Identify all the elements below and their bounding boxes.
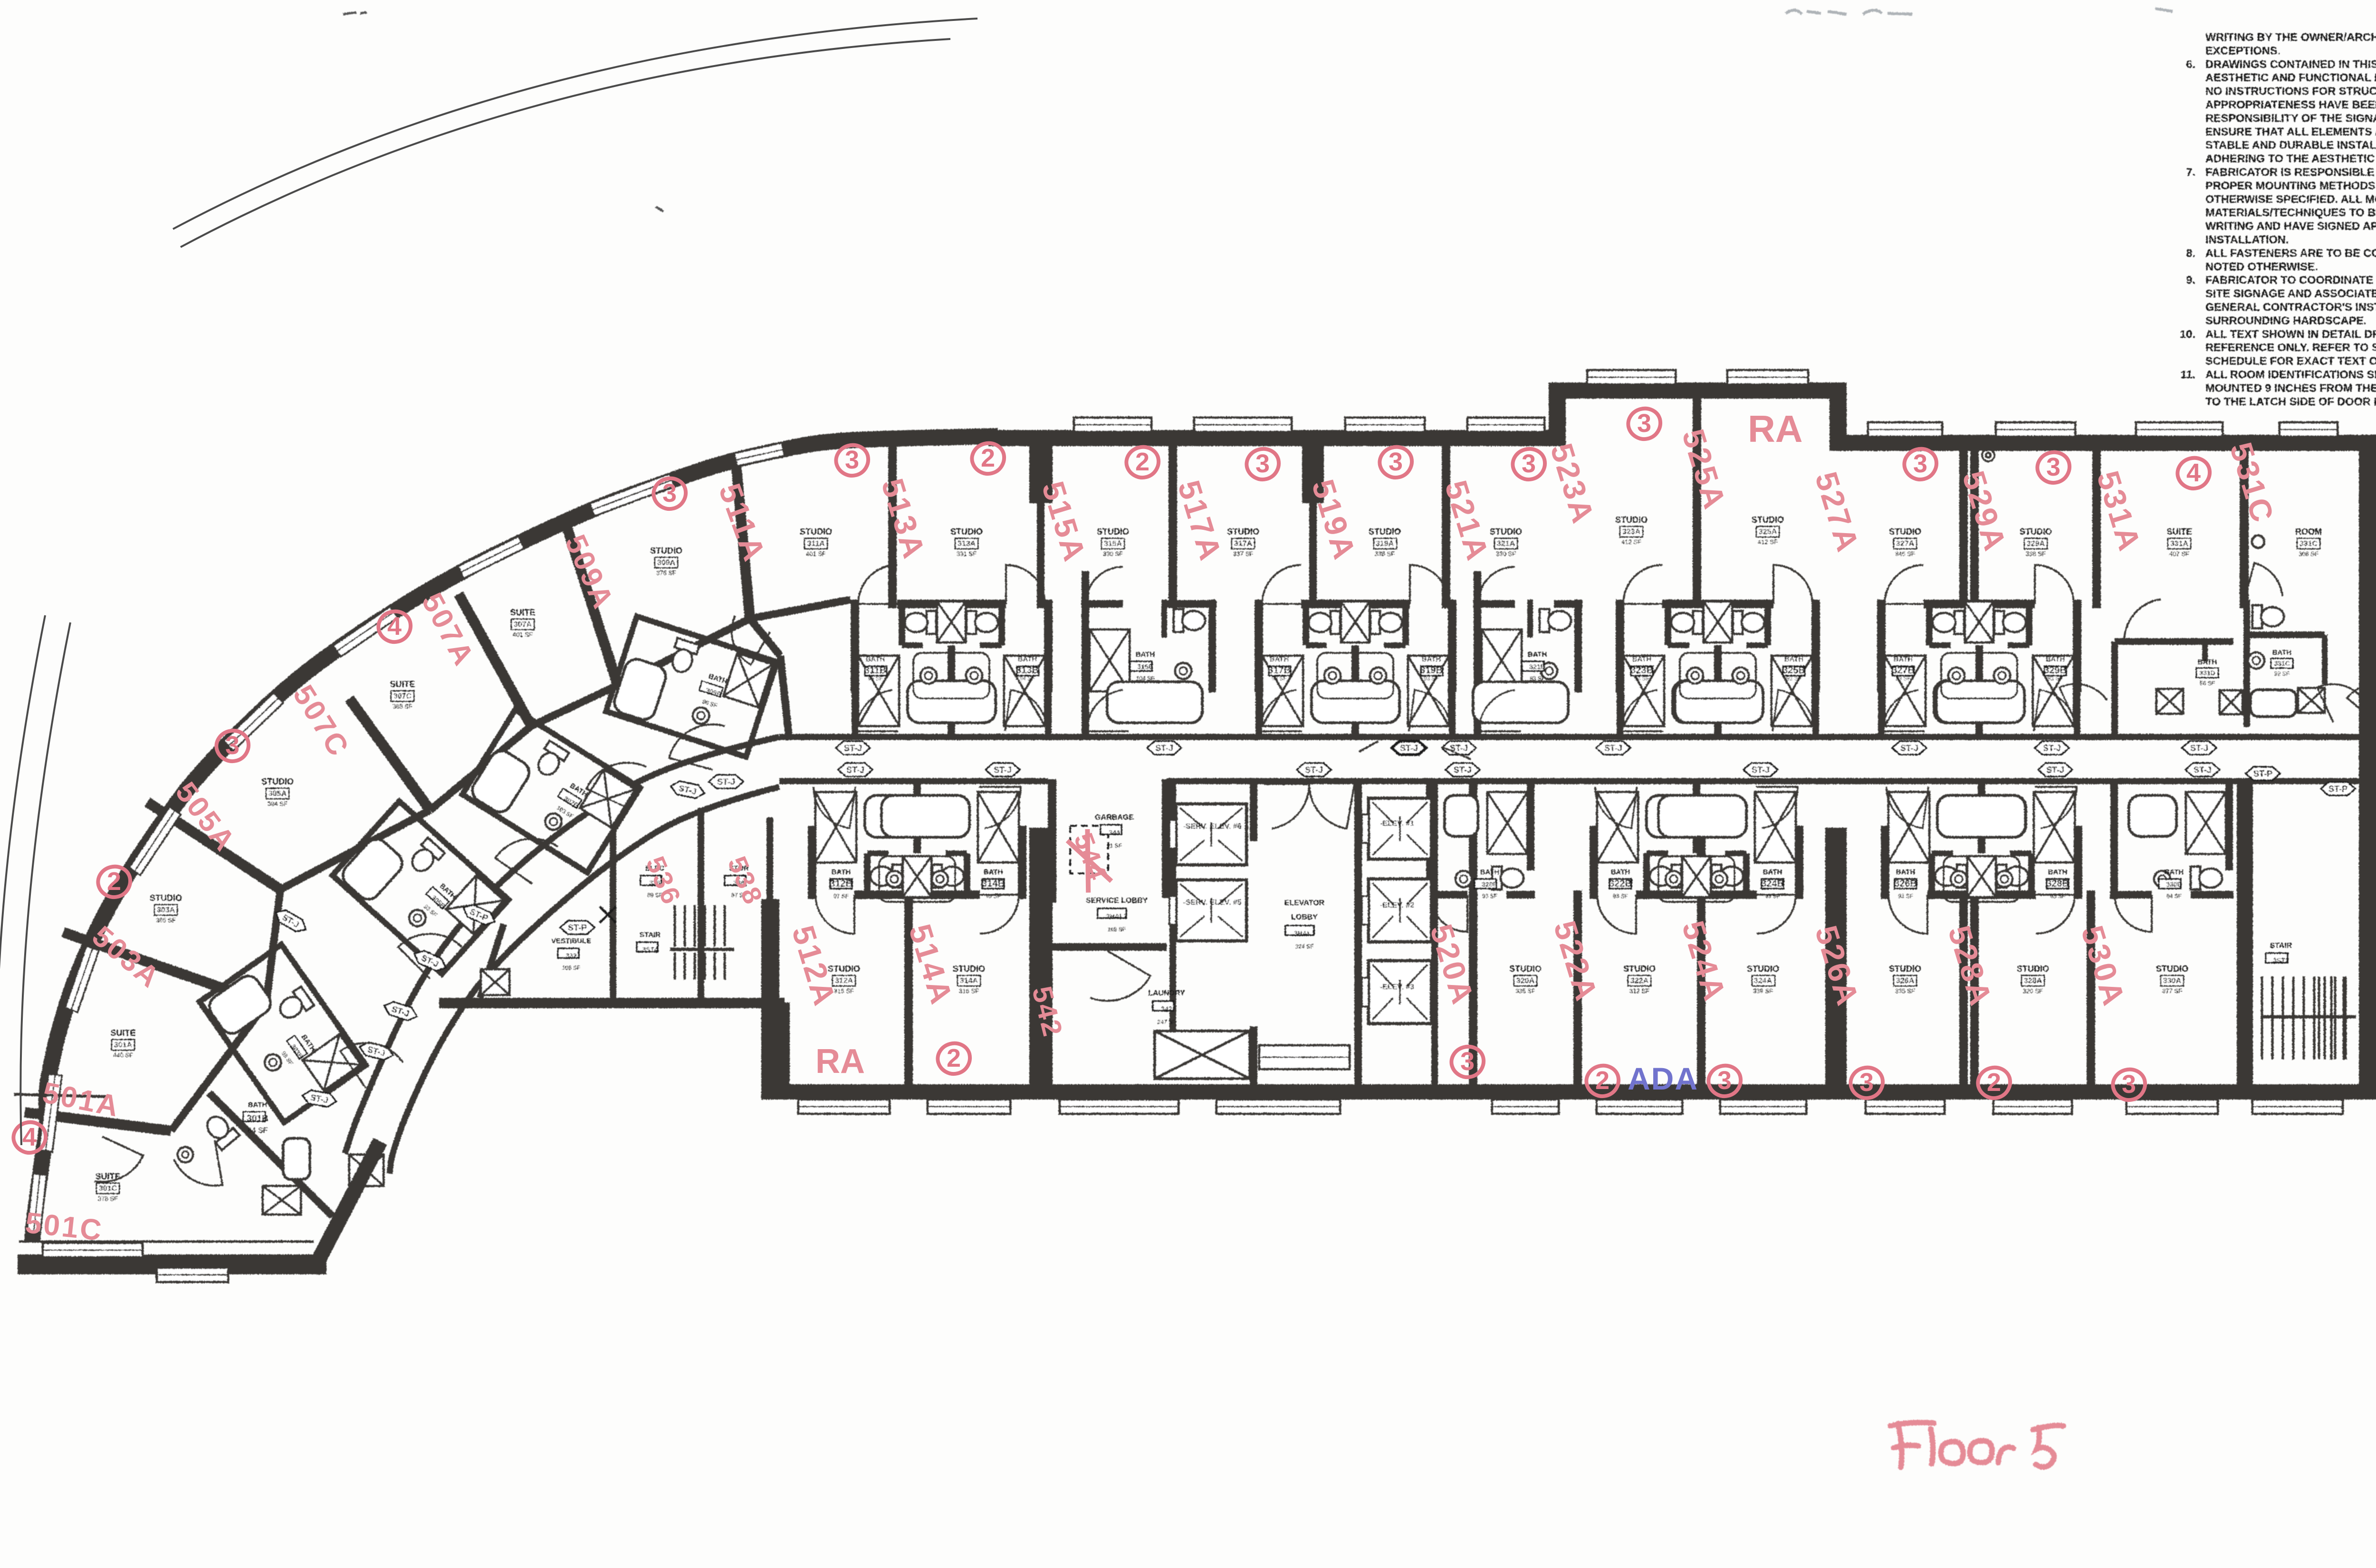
svg-text:3: 3: [225, 731, 240, 760]
svg-text:ROOM: ROOM: [2295, 527, 2322, 536]
svg-text:2: 2: [1135, 448, 1150, 476]
svg-text:97 SF: 97 SF: [834, 893, 849, 899]
svg-text:STUDIO: STUDIO: [2020, 527, 2052, 536]
svg-text:STUDIO: STUDIO: [1227, 527, 1259, 536]
svg-text:BATH: BATH: [1422, 655, 1441, 663]
svg-text:SUITE: SUITE: [2166, 527, 2192, 536]
svg-text:4: 4: [2186, 459, 2201, 487]
svg-text:332: 332: [565, 952, 577, 959]
svg-text:SERVICE LOBBY: SERVICE LOBBY: [1086, 897, 1148, 905]
svg-text:320B: 320B: [1482, 880, 1497, 888]
svg-text:BATH: BATH: [2046, 655, 2065, 663]
svg-text:3: 3: [1913, 449, 1927, 478]
svg-text:3: 3: [1522, 449, 1536, 478]
svg-text:315A: 315A: [1104, 540, 1122, 548]
svg-text:2: 2: [947, 1044, 961, 1072]
svg-text:SUITE: SUITE: [510, 608, 535, 617]
svg-text:TO THE LATCH SIDE OF DOOR FRAM: TO THE LATCH SIDE OF DOOR FRAME.: [2205, 395, 2376, 408]
svg-text:ST-J: ST-J: [1604, 744, 1622, 753]
svg-text:SITE SIGNAGE AND ASSOCIATED FO: SITE SIGNAGE AND ASSOCIATED FOOTINGS W: [2205, 287, 2376, 300]
svg-text:3: 3: [1460, 1047, 1475, 1076]
svg-text:315B: 315B: [1137, 663, 1153, 670]
svg-text:309A: 309A: [657, 559, 676, 567]
svg-text:323A: 323A: [1622, 528, 1641, 536]
svg-text:344: 344: [1109, 829, 1120, 836]
svg-text:ST-J: ST-J: [2190, 744, 2208, 753]
svg-text:-ELEV. #1: -ELEV. #1: [1380, 820, 1414, 828]
svg-text:320A: 320A: [1516, 977, 1535, 985]
svg-text:93 SF: 93 SF: [2048, 675, 2063, 682]
svg-text:RA: RA: [815, 1042, 865, 1080]
svg-text:324A: 324A: [1754, 977, 1772, 985]
svg-text:3: 3: [845, 446, 859, 474]
svg-text:317B: 317B: [1268, 665, 1291, 676]
svg-text:365 SF: 365 SF: [393, 703, 412, 710]
svg-text:331 SF: 331 SF: [957, 550, 977, 557]
svg-text:BATH: BATH: [984, 868, 1003, 876]
svg-text:3ST4: 3ST4: [642, 946, 658, 953]
svg-text:93 SF: 93 SF: [1898, 893, 1913, 899]
svg-text:307A: 307A: [514, 621, 532, 629]
svg-text:94 SF: 94 SF: [1020, 675, 1035, 682]
svg-text:BATH: BATH: [1528, 650, 1547, 659]
svg-text:303A: 303A: [157, 906, 175, 914]
svg-text:BATH: BATH: [1611, 868, 1630, 876]
svg-text:STUDIO: STUDIO: [950, 527, 983, 536]
svg-text:ST-J: ST-J: [2046, 765, 2064, 775]
svg-text:342: 342: [1161, 1005, 1172, 1013]
svg-text:330B: 330B: [2166, 880, 2182, 888]
svg-text:3: 3: [2122, 1070, 2136, 1099]
svg-text:311B: 311B: [864, 665, 887, 676]
svg-text:4: 4: [387, 612, 402, 641]
svg-text:DRAWINGS CONTAINED IN THIS PAC: DRAWINGS CONTAINED IN THIS PACKAGE ARE: [2205, 58, 2376, 70]
svg-text:322B: 322B: [1609, 879, 1632, 889]
svg-text:10.: 10.: [2180, 328, 2195, 340]
svg-text:-ELEV. #3: -ELEV. #3: [1380, 983, 1414, 991]
svg-text:STUDIO: STUDIO: [1889, 527, 1921, 536]
svg-text:2: 2: [107, 867, 121, 896]
svg-text:3: 3: [1859, 1068, 1874, 1097]
svg-text:SCHEDULE FOR EXACT TEXT ON EAC: SCHEDULE FOR EXACT TEXT ON EACH SIGN.: [2205, 355, 2376, 367]
svg-text:STUDIO: STUDIO: [150, 893, 182, 903]
svg-text:378 SF: 378 SF: [98, 1195, 118, 1202]
svg-text:ALL ROOM IDENTIFICATIONS SIGNS: ALL ROOM IDENTIFICATIONS SIGNS ARE TO B: [2205, 368, 2376, 381]
svg-text:OTHERWISE SPECIFIED. ALL MOUN: OTHERWISE SPECIFIED. ALL MOUNTING: [2205, 193, 2376, 205]
svg-text:324B: 324B: [1761, 879, 1784, 889]
svg-text:330 SF: 330 SF: [1496, 550, 1516, 557]
svg-text:REFERENCE ONLY. REFER TO SIGN: REFERENCE ONLY. REFER TO SIGNAGE MESSA: [2205, 341, 2376, 354]
svg-text:GARBAGE: GARBAGE: [1095, 813, 1134, 822]
svg-text:365 SF: 365 SF: [156, 917, 176, 924]
svg-text:BATH: BATH: [866, 655, 885, 663]
svg-text:331C: 331C: [2299, 540, 2318, 548]
svg-text:ADA: ADA: [1628, 1061, 1698, 1096]
svg-text:317A: 317A: [1234, 540, 1253, 548]
svg-text:PROPER MOUNTING METHODS FOR SI: PROPER MOUNTING METHODS FOR SIGNS UN: [2205, 179, 2376, 191]
svg-text:325B: 325B: [1782, 665, 1805, 676]
svg-text:323B: 323B: [1630, 665, 1653, 676]
svg-text:328B: 328B: [2046, 879, 2069, 889]
svg-text:8.: 8.: [2186, 247, 2195, 259]
svg-text:394 SF: 394 SF: [268, 800, 287, 807]
svg-text:412 SF: 412 SF: [1621, 538, 1641, 545]
svg-text:ALL FASTENERS ARE TO BE CONCEA: ALL FASTENERS ARE TO BE CONCEALED UNLE: [2205, 247, 2376, 259]
svg-text:ST-J: ST-J: [1752, 765, 1770, 775]
svg-text:BATH: BATH: [1018, 655, 1037, 663]
svg-text:93 SF: 93 SF: [1482, 893, 1497, 899]
svg-text:95 SF: 95 SF: [868, 675, 883, 682]
svg-text:337 SF: 337 SF: [1233, 550, 1253, 557]
svg-text:3HAL1: 3HAL1: [1294, 929, 1315, 937]
svg-text:338 SF: 338 SF: [1375, 550, 1395, 557]
svg-text:306 SF: 306 SF: [2299, 550, 2319, 557]
svg-text:93 SF: 93 SF: [1634, 675, 1649, 682]
svg-text:345 SF: 345 SF: [1895, 550, 1915, 557]
svg-text:93 SF: 93 SF: [1424, 675, 1439, 682]
svg-text:305A: 305A: [268, 790, 287, 798]
svg-text:EXCEPTIONS.: EXCEPTIONS.: [2205, 44, 2280, 57]
svg-text:ST-J: ST-J: [844, 744, 862, 753]
svg-text:BATH: BATH: [2048, 868, 2068, 876]
svg-text:331C: 331C: [2274, 660, 2290, 667]
svg-text:BATH: BATH: [248, 1101, 268, 1109]
svg-text:3: 3: [1637, 409, 1651, 438]
svg-text:MOUNTED 9 INCHES FROM THE CENT: MOUNTED 9 INCHES FROM THE CENTER OF T: [2205, 382, 2376, 394]
svg-text:RA: RA: [1748, 408, 1803, 450]
svg-text:401 SF: 401 SF: [806, 550, 826, 557]
svg-text:311A: 311A: [807, 540, 825, 548]
svg-text:339 SF: 339 SF: [1753, 987, 1773, 994]
svg-text:BATH: BATH: [1763, 868, 1782, 876]
svg-text:ST-J: ST-J: [2043, 744, 2061, 753]
svg-text:2: 2: [981, 444, 995, 472]
svg-text:92 SF: 92 SF: [2274, 670, 2290, 677]
svg-text:STUDIO: STUDIO: [261, 777, 294, 786]
svg-text:ST-J: ST-J: [2194, 765, 2212, 775]
svg-text:APPROPRIATENESS HAVE BEEN MADE: APPROPRIATENESS HAVE BEEN MADE. IT IS T: [2205, 98, 2376, 111]
svg-text:330 SF: 330 SF: [1103, 550, 1123, 557]
svg-text:93 SF: 93 SF: [1896, 675, 1911, 682]
svg-text:ST-J: ST-J: [1155, 744, 1173, 753]
svg-text:3: 3: [662, 479, 677, 507]
svg-text:-ELEV. #2: -ELEV. #2: [1380, 901, 1414, 909]
svg-text:NOTED OTHERWISE.: NOTED OTHERWISE.: [2205, 260, 2318, 273]
svg-text:STUDIO: STUDIO: [2017, 964, 2049, 974]
svg-text:331D: 331D: [2199, 669, 2215, 677]
svg-text:377 SF: 377 SF: [2162, 987, 2182, 994]
svg-text:4: 4: [22, 1123, 37, 1151]
svg-text:LAUNDRY: LAUNDRY: [1148, 989, 1185, 997]
svg-text:329A: 329A: [2027, 540, 2045, 548]
svg-text:321B: 321B: [1529, 663, 1545, 670]
svg-text:ST-J: ST-J: [1454, 765, 1472, 775]
svg-text:STUDIO: STUDIO: [953, 964, 985, 974]
svg-text:BATH: BATH: [1784, 655, 1804, 663]
svg-text:BATH: BATH: [2165, 868, 2184, 876]
svg-text:84 SF: 84 SF: [248, 1127, 268, 1135]
svg-text:247 SF: 247 SF: [1158, 1019, 1176, 1025]
svg-text:328A: 328A: [2024, 977, 2042, 985]
svg-text:BATH: BATH: [2198, 658, 2217, 666]
svg-text:INSTALLATION.: INSTALLATION.: [2205, 233, 2289, 246]
svg-text:169 SF: 169 SF: [1108, 926, 1126, 933]
svg-text:331A: 331A: [2170, 540, 2189, 548]
svg-text:319A: 319A: [1376, 540, 1394, 548]
svg-text:440 SF: 440 SF: [113, 1052, 133, 1059]
svg-text:330A: 330A: [2163, 977, 2182, 985]
svg-text:3: 3: [1717, 1066, 1732, 1095]
svg-text:STAIR: STAIR: [2270, 942, 2292, 950]
svg-text:2: 2: [1987, 1068, 2001, 1097]
svg-text:ELEVATOR: ELEVATOR: [1284, 899, 1325, 907]
svg-text:321A: 321A: [1497, 540, 1515, 548]
svg-text:WRITING AND HAVE SIGNED APPROV: WRITING AND HAVE SIGNED APPROVAL PRIO: [2205, 220, 2376, 232]
svg-text:-SERV. ELEV. #5: -SERV. ELEV. #5: [1183, 899, 1241, 907]
svg-text:BATH: BATH: [1480, 868, 1500, 876]
svg-text:301C: 301C: [99, 1185, 117, 1193]
svg-text:STUDIO: STUDIO: [1615, 515, 1648, 525]
svg-text:STUDIO: STUDIO: [1509, 964, 1542, 974]
svg-text:3: 3: [1255, 449, 1270, 478]
svg-text:319B: 319B: [1420, 665, 1443, 676]
svg-text:93 SF: 93 SF: [2050, 893, 2065, 899]
svg-text:401 SF: 401 SF: [513, 631, 533, 638]
svg-text:BATH: BATH: [832, 868, 851, 876]
svg-text:313A: 313A: [958, 540, 976, 548]
svg-text:ST-P: ST-P: [2328, 784, 2347, 794]
svg-text:92 SF: 92 SF: [1786, 675, 1801, 682]
svg-text:AESTHETIC AND FUNCTIONAL DESIG: AESTHETIC AND FUNCTIONAL DESIGN INTENT: [2205, 71, 2376, 84]
svg-text:320 SF: 320 SF: [2023, 987, 2043, 994]
svg-text:ADHERING TO THE AESTHETIC DETA: ADHERING TO THE AESTHETIC DETAILS INDIC.: [2205, 153, 2376, 165]
svg-text:SUITE: SUITE: [110, 1028, 135, 1038]
svg-text:RESPONSIBILITY OF THE SIGNAGE: RESPONSIBILITY OF THE SIGNAGE FABRICATO: [2205, 112, 2376, 124]
svg-text:313B: 313B: [1016, 665, 1039, 676]
svg-text:BATH: BATH: [1270, 655, 1289, 663]
svg-text:93 SF: 93 SF: [1530, 675, 1545, 682]
svg-text:STUDIO: STUDIO: [650, 546, 682, 555]
svg-text:93 SF: 93 SF: [1613, 893, 1628, 899]
svg-text:BATH: BATH: [1136, 650, 1155, 659]
svg-text:94 SF: 94 SF: [2166, 893, 2182, 899]
svg-text:ST-J: ST-J: [717, 777, 735, 787]
svg-text:312B: 312B: [830, 879, 853, 889]
svg-text:327B: 327B: [1892, 665, 1915, 676]
svg-text:ST-J: ST-J: [1305, 765, 1323, 775]
svg-text:99 SF: 99 SF: [986, 893, 1001, 899]
svg-text:93 SF: 93 SF: [1765, 893, 1780, 899]
svg-text:FABRICATOR IS RESPONSIBLE FOR: FABRICATOR IS RESPONSIBLE FOR DETERMIN: [2205, 166, 2376, 178]
svg-text:3: 3: [2046, 453, 2060, 481]
svg-text:106 SF: 106 SF: [562, 965, 581, 971]
svg-text:ENSURE THAT ALL ELEMENTS ARE F: ENSURE THAT ALL ELEMENTS ARE FABRICATE: [2205, 125, 2376, 138]
svg-text:ST-J: ST-J: [1900, 744, 1918, 753]
svg-text:335 SF: 335 SF: [1515, 987, 1535, 994]
svg-text:7.: 7.: [2186, 166, 2195, 178]
svg-text:378 SF: 378 SF: [656, 569, 676, 576]
svg-text:314B: 314B: [982, 879, 1005, 889]
svg-text:104 SF: 104 SF: [1136, 675, 1155, 682]
svg-text:BATH: BATH: [1632, 655, 1652, 663]
svg-text:3ST2: 3ST2: [2273, 956, 2289, 964]
svg-text:9.: 9.: [2186, 274, 2195, 286]
svg-text:326A: 326A: [1896, 977, 1915, 985]
svg-text:STUDIO: STUDIO: [1623, 964, 1656, 974]
svg-text:WRITING BY THE OWNER/ARCHITECT: WRITING BY THE OWNER/ARCHITECT. NO: [2205, 31, 2376, 43]
svg-text:BATH: BATH: [1894, 655, 1913, 663]
svg-text:316 SF: 316 SF: [959, 987, 979, 994]
svg-text:301A: 301A: [114, 1041, 133, 1049]
svg-text:21 SF: 21 SF: [1107, 842, 1122, 849]
svg-text:STUDIO: STUDIO: [800, 527, 832, 536]
svg-text:56 SF: 56 SF: [2200, 680, 2215, 687]
svg-text:11.: 11.: [2181, 368, 2195, 381]
svg-text:407 SF: 407 SF: [2169, 550, 2189, 557]
svg-text:301B: 301B: [247, 1114, 268, 1124]
svg-text:STUDIO: STUDIO: [1747, 964, 1779, 974]
svg-text:312 SF: 312 SF: [1629, 987, 1649, 994]
svg-text:2: 2: [1595, 1066, 1610, 1095]
svg-text:307C: 307C: [393, 692, 412, 700]
svg-text:STUDIO: STUDIO: [1490, 527, 1522, 536]
svg-text:STUDIO: STUDIO: [1752, 515, 1784, 525]
svg-text:STUDIO: STUDIO: [2156, 964, 2188, 974]
svg-text:329B: 329B: [2044, 665, 2067, 676]
svg-text:VESTIBULE: VESTIBULE: [551, 937, 591, 945]
svg-text:STUDIO: STUDIO: [1097, 527, 1129, 536]
svg-text:STABLE AND DURABLE INSTALLATIO: STABLE AND DURABLE INSTALLATION WHILE: [2205, 139, 2376, 151]
svg-text:-SERV. ELEV. #6: -SERV. ELEV. #6: [1183, 822, 1241, 831]
svg-text:SUITE: SUITE: [390, 679, 415, 689]
svg-text:STAIR: STAIR: [640, 931, 661, 939]
svg-text:338 SF: 338 SF: [2026, 550, 2046, 557]
svg-text:324 SF: 324 SF: [1295, 943, 1314, 950]
svg-text:BATH: BATH: [1896, 868, 1916, 876]
svg-text:ST-P: ST-P: [2253, 769, 2272, 779]
svg-text:FABRICATOR TO COORDINATE THE I: FABRICATOR TO COORDINATE THE INSTALLAT: [2205, 274, 2376, 286]
svg-text:412 SF: 412 SF: [1758, 538, 1778, 545]
svg-text:3: 3: [1389, 448, 1403, 476]
svg-text:ST-J: ST-J: [994, 765, 1012, 775]
svg-text:NO INSTRUCTIONS FOR STRUCTURAL: NO INSTRUCTIONS FOR STRUCTURAL: [2205, 85, 2376, 97]
svg-text:GENERAL CONTRACTOR'S INSTALLAT: GENERAL CONTRACTOR'S INSTALLATION OF T: [2205, 301, 2376, 313]
svg-text:STUDIO: STUDIO: [1889, 964, 1921, 974]
svg-text:322A: 322A: [1630, 977, 1649, 985]
svg-text:MATERIALS/TECHNIQUES TO BE APP: MATERIALS/TECHNIQUES TO BE APPROVED IN: [2205, 206, 2376, 219]
svg-text:6.: 6.: [2186, 58, 2195, 70]
svg-text:ST-J: ST-J: [846, 765, 864, 775]
svg-text:ST-P: ST-P: [568, 923, 587, 933]
svg-text:STUDIO: STUDIO: [1369, 527, 1401, 536]
svg-text:326B: 326B: [1894, 879, 1917, 889]
svg-text:314A: 314A: [960, 977, 978, 985]
svg-text:BATH: BATH: [2272, 649, 2292, 657]
svg-text:ST-J: ST-J: [1400, 744, 1418, 753]
svg-text:335 SF: 335 SF: [1895, 987, 1915, 994]
svg-text:ALL TEXT SHOWN IN DETAIL DRAWI: ALL TEXT SHOWN IN DETAIL DRAWINGS IS FO: [2205, 328, 2376, 340]
svg-text:LOBBY: LOBBY: [1291, 913, 1318, 921]
svg-text:327A: 327A: [1896, 540, 1915, 548]
svg-text:325A: 325A: [1759, 528, 1777, 536]
svg-text:93 SF: 93 SF: [1272, 675, 1287, 682]
svg-text:3HAL2: 3HAL2: [1106, 912, 1128, 920]
svg-text:SURROUNDING HARDSCAPE.: SURROUNDING HARDSCAPE.: [2205, 314, 2366, 326]
